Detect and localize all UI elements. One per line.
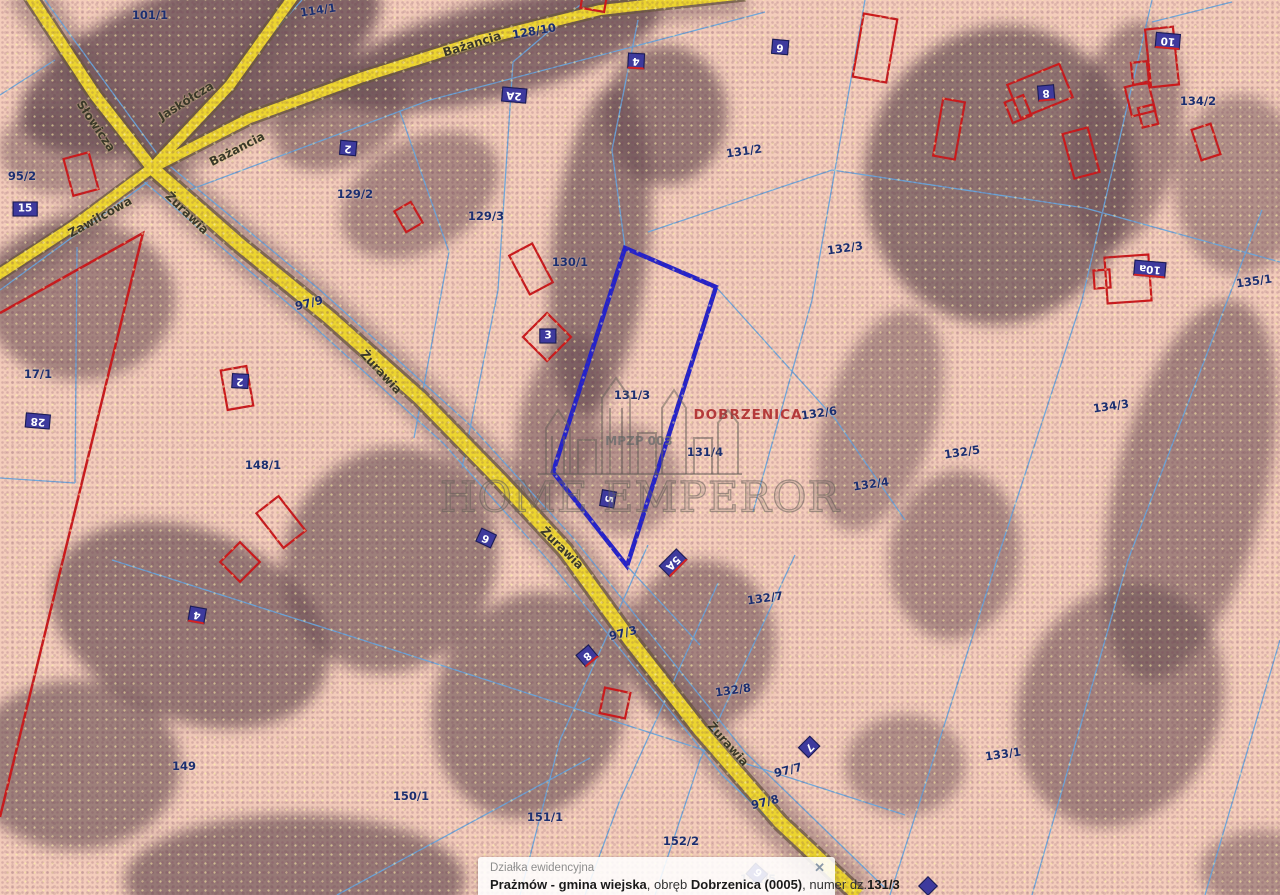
parcel-number-label: 131/4 <box>687 445 723 459</box>
parcel-number-label: 151/1 <box>527 810 563 824</box>
address-number-badge: 2 <box>339 140 358 156</box>
popup-text-segment: Prażmów - gmina wiejska <box>490 877 647 892</box>
plan-label: MPZP 003 <box>605 434 672 448</box>
street-label: Żurawia <box>538 524 587 572</box>
street-label: Bażancia <box>207 129 267 169</box>
parcel-number-label: 97/9 <box>294 293 325 313</box>
parcel-number-label: 128/10 <box>511 20 557 41</box>
parcel-number-label: 101/1 <box>132 8 168 22</box>
parcel-number-label: 134/3 <box>1092 397 1130 416</box>
street-label: Bażancia <box>441 29 503 60</box>
popup-text-segment: , obręb <box>647 877 691 892</box>
street-label: Jaskółcza <box>156 79 216 124</box>
address-number-badge: 8 <box>1037 84 1056 101</box>
address-number-badge: 5 <box>599 489 617 509</box>
parcel-number-label: 131/3 <box>614 388 650 402</box>
address-number-badge: 10 <box>1155 32 1181 50</box>
address-number-badge <box>918 876 938 895</box>
address-number-badge: 4 <box>627 53 645 70</box>
parcel-number-label: 97/8 <box>750 792 781 812</box>
address-number-badge: 4 <box>187 606 207 625</box>
popup-parcel-info: Prażmów - gmina wiejska, obręb Dobrzenic… <box>490 877 825 892</box>
street-label: Żurawia <box>705 719 752 769</box>
parcel-number-label: 130/1 <box>552 255 588 269</box>
parcel-number-label: 148/1 <box>245 458 281 472</box>
address-number-badge: 5A <box>658 548 687 577</box>
parcel-number-label: 132/5 <box>943 443 981 462</box>
parcel-number-label: 17/1 <box>24 367 52 381</box>
parcel-number-label: 131/2 <box>725 142 763 161</box>
popup-text-segment: Dobrzenica (0005) <box>691 877 802 892</box>
address-number-badge: 3 <box>539 329 556 344</box>
parcel-number-label: 95/2 <box>8 169 36 183</box>
popup-text-segment: 131/3 <box>867 877 900 892</box>
address-number-badge: 6 <box>475 528 497 549</box>
address-number-badge: 2A <box>501 86 528 103</box>
parcel-number-label: 134/2 <box>1180 94 1216 108</box>
parcel-number-label: 135/1 <box>1235 272 1273 291</box>
locality-label: DOBRZENICA <box>693 407 802 423</box>
popup-text-segment: , numer dz. <box>802 877 867 892</box>
address-number-badge: 10a <box>1134 260 1167 279</box>
street-label: Zawilcowa <box>66 194 135 240</box>
parcel-number-label: 132/7 <box>746 589 784 608</box>
map-labels-layer: DOBRZENICA MPZP 003 SłowiczaJaskółczaBaż… <box>0 0 1280 895</box>
parcel-number-label: 132/6 <box>800 404 838 423</box>
close-icon[interactable]: ✕ <box>814 862 825 874</box>
address-number-badge: 6 <box>771 39 790 55</box>
parcel-number-label: 132/3 <box>826 239 864 258</box>
parcel-number-label: 97/3 <box>608 623 639 643</box>
parcel-number-label: 97/7 <box>773 760 804 780</box>
parcel-number-label: 149 <box>172 759 196 773</box>
street-label: Słowicza <box>74 98 118 155</box>
parcel-number-label: 152/2 <box>663 834 699 848</box>
parcel-info-popup: Działka ewidencyjna ✕ Prażmów - gmina wi… <box>478 857 835 895</box>
address-number-badge: 28 <box>25 412 51 429</box>
parcel-number-label: 132/8 <box>714 681 752 700</box>
parcel-number-label: 129/2 <box>337 187 373 201</box>
parcel-number-label: 133/1 <box>984 745 1022 764</box>
parcel-number-label: 114/1 <box>299 1 337 20</box>
address-number-badge: 15 <box>13 202 38 217</box>
street-label: Żurawia <box>357 347 404 396</box>
street-label: Żurawia <box>163 189 212 237</box>
address-number-badge: 7 <box>798 736 821 759</box>
parcel-number-label: 150/1 <box>393 789 429 803</box>
map-viewport[interactable]: DOBRZENICA MPZP 003 SłowiczaJaskółczaBaż… <box>0 0 1280 895</box>
parcel-number-label: 132/4 <box>852 475 890 494</box>
address-number-badge: 2 <box>231 373 249 389</box>
address-number-badge: 8 <box>575 644 599 667</box>
parcel-number-label: 129/3 <box>468 209 504 223</box>
popup-title: Działka ewidencyjna <box>490 862 594 874</box>
